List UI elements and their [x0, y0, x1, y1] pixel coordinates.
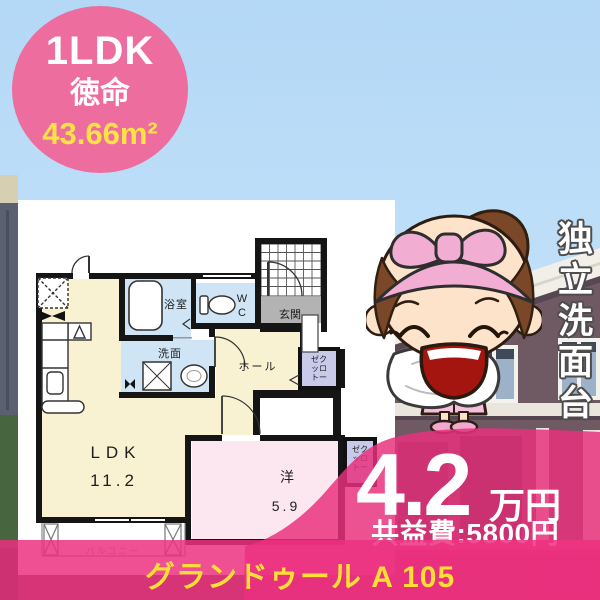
footer-banner: グランドゥール A 105 [0, 540, 600, 600]
property-name: グランドゥール A 105 [0, 552, 600, 596]
listing-flyer: 浴室 洗面 W C 玄関 ホール ゼク ッロ トー ゼク ッロ トー LDK 1… [0, 0, 600, 600]
